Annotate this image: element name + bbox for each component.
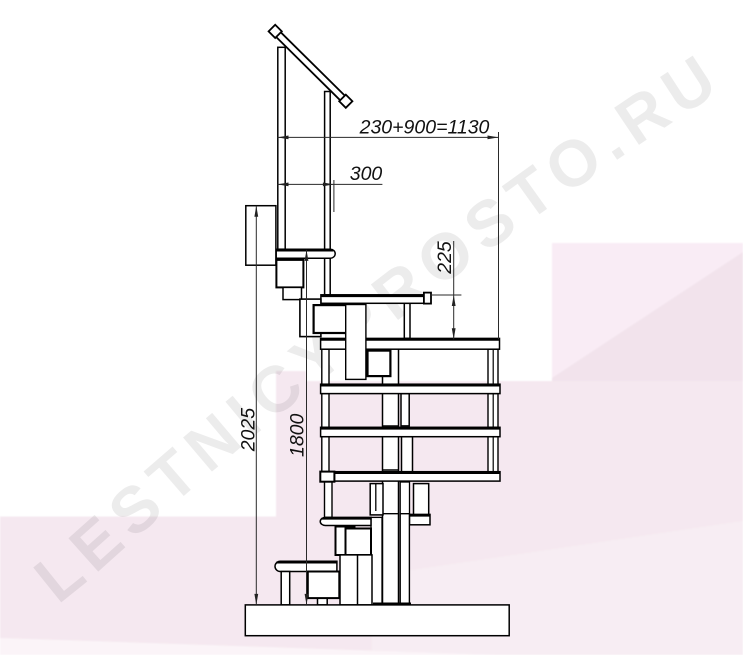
svg-text:2025: 2025 [237,408,259,453]
svg-text:230+900=1130: 230+900=1130 [359,117,490,139]
svg-text:300: 300 [350,163,383,185]
svg-text:225: 225 [434,241,456,275]
svg-text:1800: 1800 [286,413,308,457]
